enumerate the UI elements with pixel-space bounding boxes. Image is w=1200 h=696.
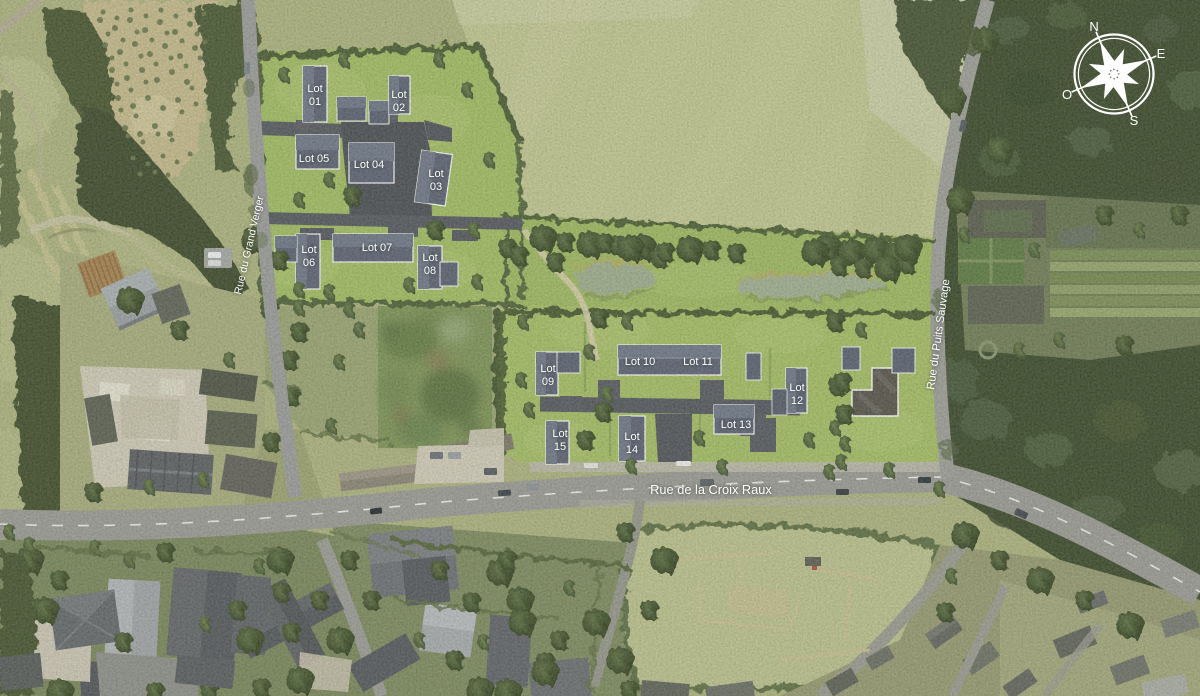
svg-text:Lot 04: Lot 04: [354, 159, 385, 171]
svg-text:S: S: [1130, 113, 1139, 128]
svg-text:02: 02: [393, 102, 405, 114]
svg-text:Lot: Lot: [428, 168, 443, 180]
svg-text:O: O: [1062, 87, 1072, 102]
svg-text:Lot: Lot: [391, 89, 406, 101]
svg-text:Lot: Lot: [552, 428, 567, 440]
svg-text:Lot: Lot: [540, 363, 555, 375]
svg-text:Lot: Lot: [422, 252, 437, 264]
svg-text:Lot 07: Lot 07: [362, 242, 393, 254]
svg-text:14: 14: [626, 444, 638, 456]
svg-text:E: E: [1157, 46, 1166, 61]
svg-text:Lot 13: Lot 13: [721, 419, 752, 431]
svg-text:03: 03: [430, 181, 442, 193]
svg-text:01: 01: [309, 96, 321, 108]
svg-text:12: 12: [791, 395, 803, 407]
svg-text:Lot: Lot: [789, 382, 804, 394]
svg-text:Lot: Lot: [624, 431, 639, 443]
svg-text:Rue de la Croix Raux: Rue de la Croix Raux: [650, 482, 772, 497]
svg-text:Lot 05: Lot 05: [299, 153, 330, 165]
svg-text:Lot 10: Lot 10: [625, 356, 656, 368]
svg-text:Lot: Lot: [307, 83, 322, 95]
svg-text:N: N: [1089, 19, 1098, 34]
svg-text:15: 15: [554, 441, 566, 453]
svg-text:Lot: Lot: [301, 244, 316, 256]
svg-text:Lot 11: Lot 11: [683, 356, 713, 368]
svg-text:08: 08: [424, 265, 436, 277]
svg-text:09: 09: [542, 376, 554, 388]
svg-text:06: 06: [303, 257, 315, 269]
